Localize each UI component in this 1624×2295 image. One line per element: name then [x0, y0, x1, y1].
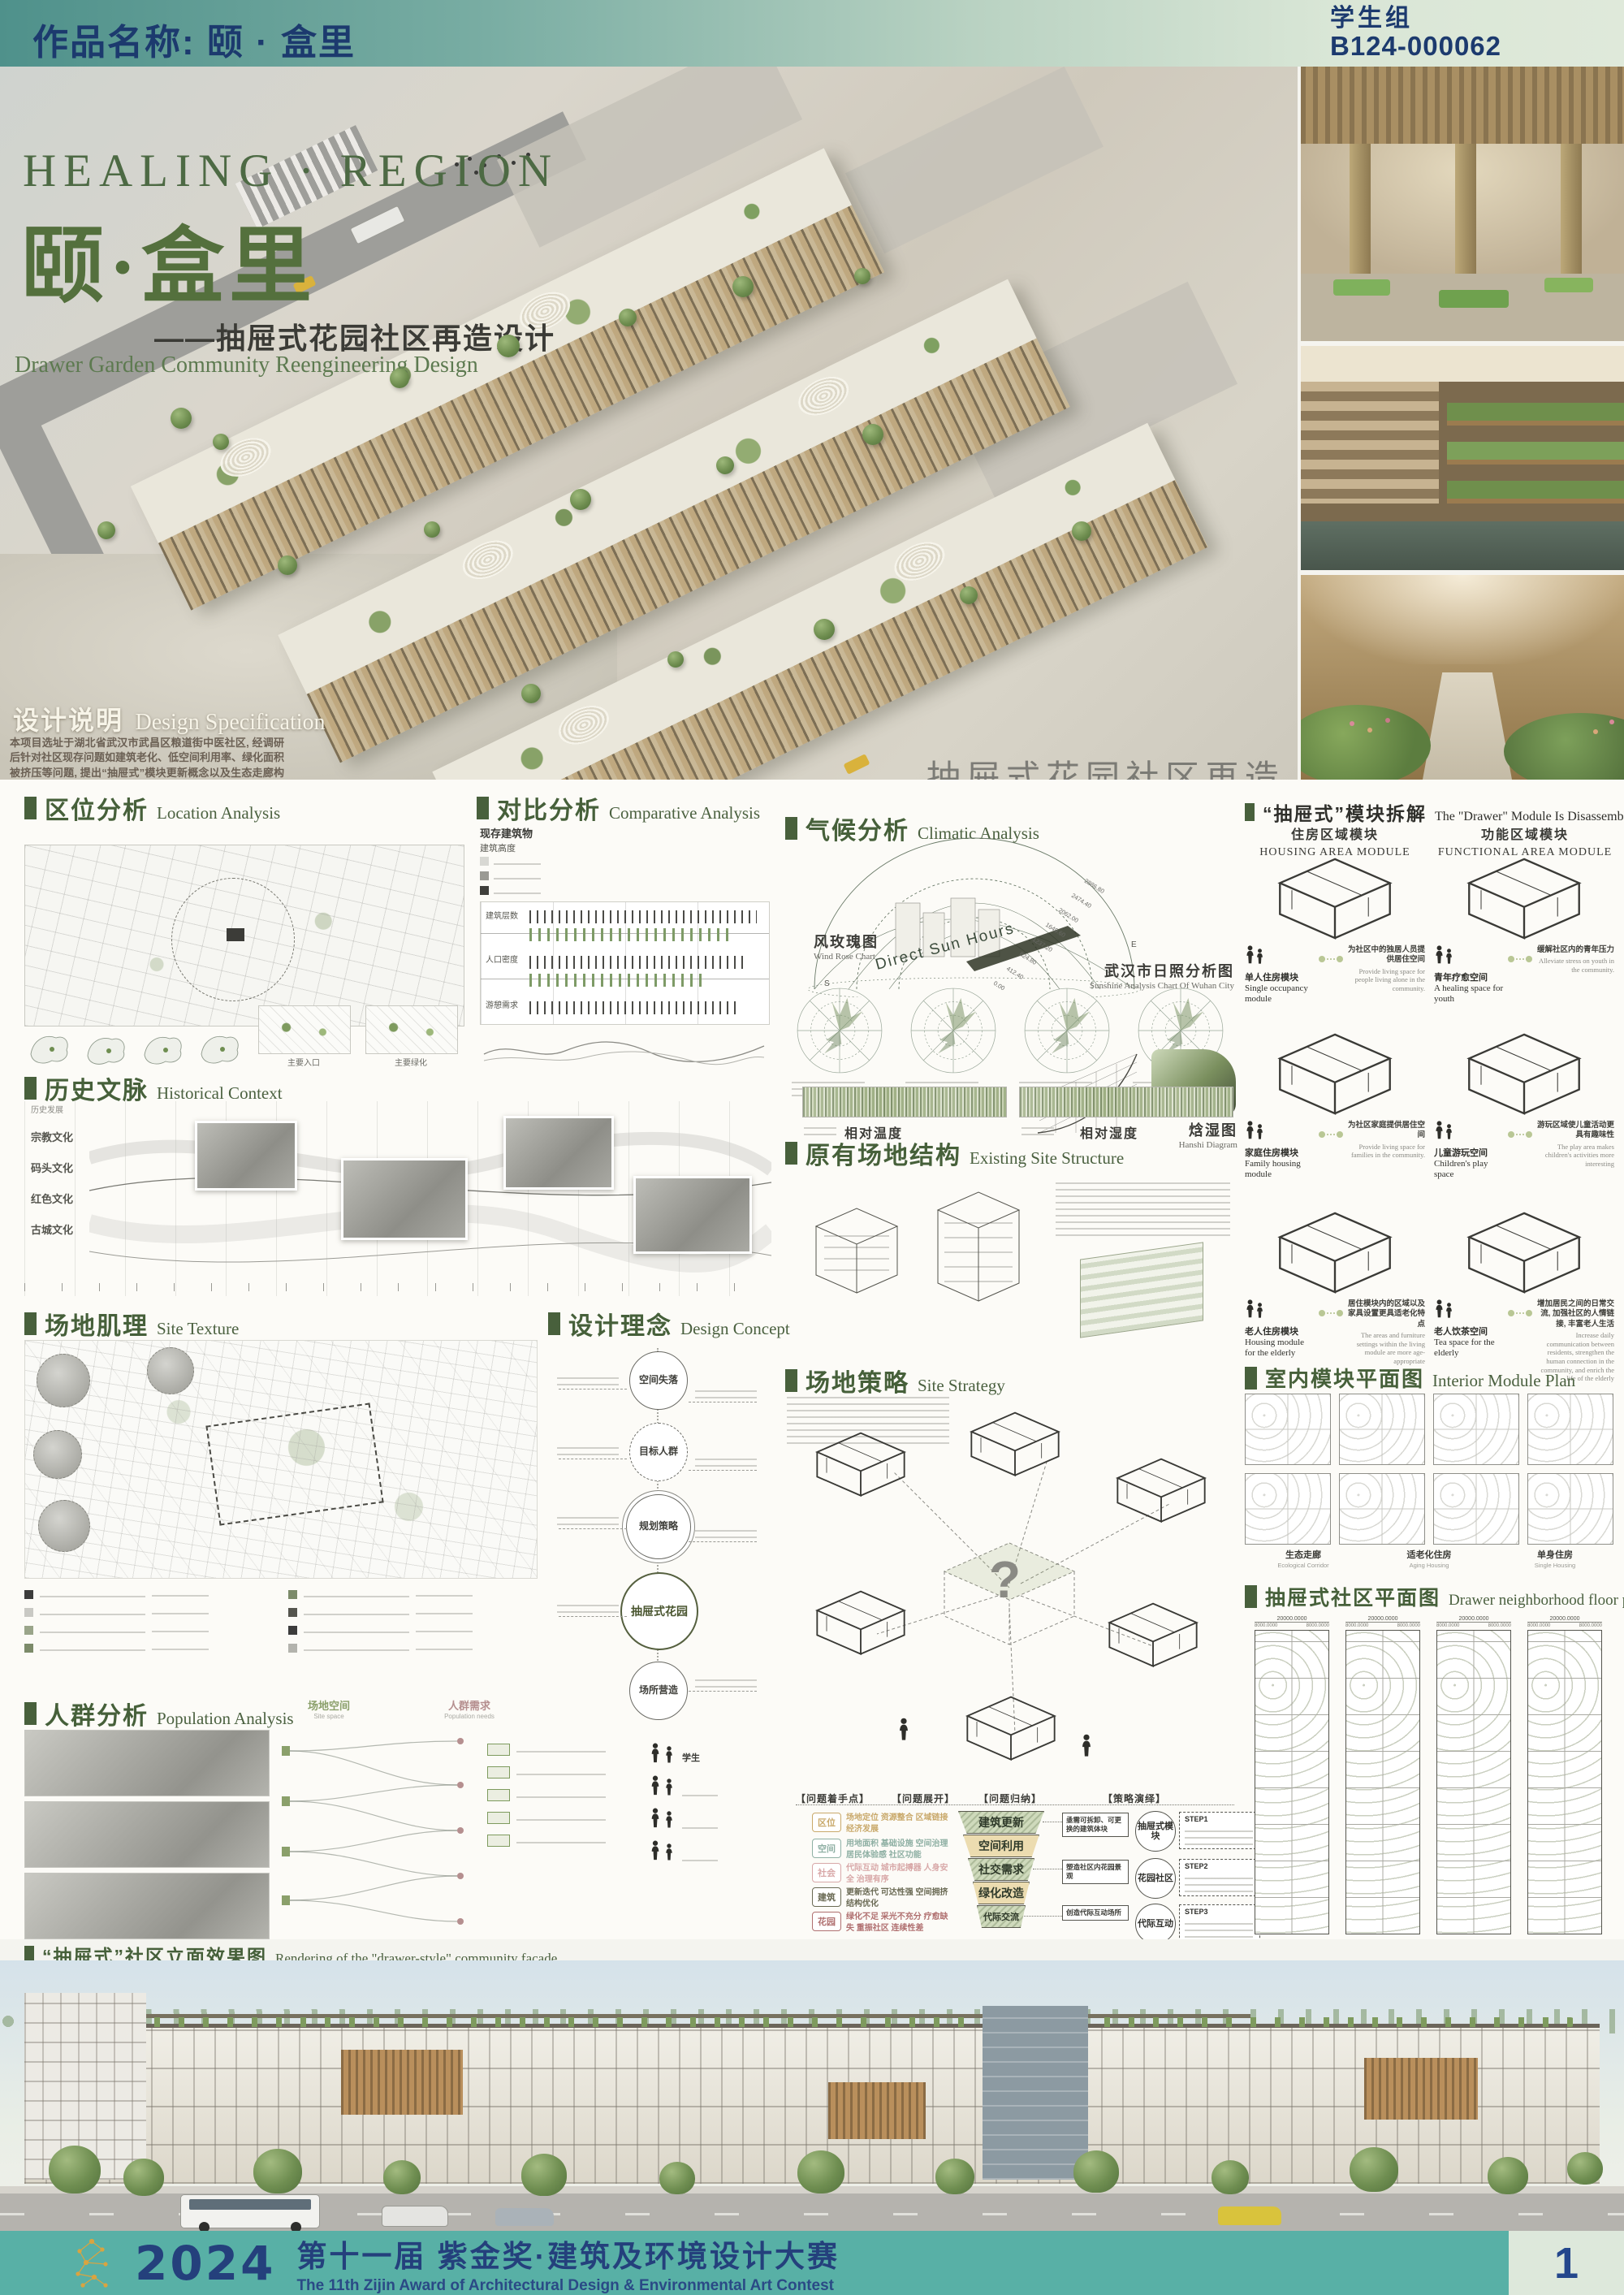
module-label: 单人住房模块Single occupancy module: [1245, 945, 1316, 1004]
legend-swatch: [480, 871, 489, 880]
module-desc-en: Provide living space for families in the…: [1345, 1143, 1425, 1160]
history-axis-label: 历史发展: [31, 1103, 63, 1115]
tree: [1567, 2152, 1603, 2185]
plan-dim-row: 8000.00008000.0000: [1345, 1623, 1420, 1628]
hero-subtitle-cn: ——抽屉式花园社区再造设计: [154, 315, 555, 357]
section-drawer-floor-plan: 抽屉式社区平面图 Drawer neighborhood floor plan: [1245, 1582, 1624, 1611]
person-icon: [650, 1840, 661, 1861]
culture-label: 古城文化: [31, 1221, 73, 1237]
sankey-header-1: 场地空间 Site space: [292, 1697, 365, 1720]
legend-text-placeholder: [416, 1610, 473, 1614]
floor-plan-strip: 20000.00008000.00008000.0000: [1255, 1616, 1329, 1934]
person-icon: [897, 1718, 910, 1742]
legend-text-placeholder: [40, 1645, 145, 1651]
tree: [732, 276, 754, 297]
dotted-connector: [1510, 1312, 1531, 1314]
history-photo: [195, 1121, 297, 1191]
section-title-cn: 场地肌理: [45, 1306, 149, 1342]
module-desc: 游玩区域使儿童活动更具有趣味性The play area makes child…: [1535, 1121, 1614, 1169]
design-spec-title-en: Design Specification: [135, 710, 325, 735]
module-cube-icon: [1463, 1030, 1585, 1116]
culture-label: 宗教文化: [31, 1129, 73, 1144]
section-marker: [24, 1702, 37, 1725]
flow-category: 花园: [812, 1912, 841, 1931]
person-icon: [1445, 949, 1453, 965]
row-label: 游憩需求: [486, 998, 518, 1010]
strategy-cube: [966, 1409, 1064, 1477]
need-list-item: [487, 1829, 633, 1852]
section-comparative-analysis: 对比分析 Comparative Analysis: [477, 790, 760, 826]
site-boundary: [205, 1402, 383, 1525]
module-desc: 居住模块内的区域以及家具设置更具适老化特点The areas and furni…: [1345, 1299, 1425, 1366]
person-group: [650, 1764, 771, 1796]
flow-arrow: [1024, 1916, 1062, 1917]
wind-rose-chart: [792, 983, 888, 1078]
strip-row: [529, 910, 757, 923]
caption-cn: 生态走廊: [1255, 1548, 1352, 1561]
windrose-label-en: Wind Rose Chart: [814, 952, 879, 962]
plan-dim-total: 20000.0000: [1436, 1616, 1511, 1623]
history-photo: [341, 1158, 468, 1240]
module-desc-cn: 增加居民之间的日常交流, 加强社区的人情链接, 丰富老人生活: [1535, 1299, 1614, 1329]
plan-body: [1527, 1630, 1602, 1934]
person-group: [650, 1796, 771, 1829]
person-icon: [1445, 1124, 1453, 1140]
temperature-heatstrip: [802, 1087, 1007, 1117]
planting-mound: [1301, 705, 1431, 780]
humidity-strip-label: 相对湿度: [1080, 1122, 1138, 1142]
need-text-placeholder: [516, 1837, 606, 1843]
hero-title-en: HEALING · REGION: [23, 145, 559, 197]
dotted-connector: [1510, 1134, 1531, 1135]
column: [1350, 144, 1371, 274]
legend-text-placeholder: [494, 859, 541, 865]
plan-dim-half: 8000.0000: [1255, 1623, 1277, 1628]
footer-titles: 第十一届 紫金奖·建筑及环境设计大赛 The 11th Zijin Award …: [296, 2232, 840, 2295]
section-title-cn: 人群分析: [45, 1696, 149, 1731]
population-person-groups: 学生: [650, 1731, 771, 1861]
interior-plan-tile: [1245, 1394, 1331, 1465]
legend-item: [480, 854, 541, 869]
step-text-placeholder: [1185, 1873, 1253, 1892]
tree: [171, 408, 192, 429]
water-reflection: [1301, 521, 1624, 570]
legend-swatch: [288, 1644, 297, 1653]
bus: [180, 2194, 320, 2228]
person-icon: [1434, 945, 1445, 965]
section-title-en: Interior Module Plan: [1432, 1371, 1575, 1391]
person-icon: [1434, 1299, 1445, 1319]
need-text-placeholder: [516, 1814, 606, 1821]
comparative-legend-items: [480, 854, 541, 898]
module-cube-icon: [1274, 1030, 1396, 1116]
question-mark: ?: [989, 1549, 1021, 1610]
section-title-cn: 设计理念: [568, 1306, 672, 1342]
concept-branch-line: [559, 1528, 627, 1529]
concept-branch-text-placeholder: [557, 1374, 619, 1385]
module-caption: 家庭住房模块Family housing module为社区家庭提供居住空间Pr…: [1245, 1121, 1425, 1179]
legend-text-placeholder: [304, 1609, 409, 1615]
population-photo: [24, 1873, 270, 1939]
module-cell: 青年疗愈空间A healing space for youth缓解社区内的青年压…: [1434, 854, 1614, 1004]
flow-keywords: 用地面积 基础设施 空间治理 居民体验感 社区功能: [846, 1839, 953, 1861]
top-header-bar: 作品名称: 颐 · 盒里 学生组 B124-000062: [0, 0, 1624, 67]
flow-circle-2: 花园社区: [1135, 1858, 1176, 1899]
plan-dim-row: 8000.00008000.0000: [1436, 1623, 1511, 1628]
legend-swatch: [24, 1626, 33, 1635]
person-icon: [664, 1779, 674, 1796]
interior-plan-tile: [1245, 1473, 1331, 1545]
tree: [49, 2146, 101, 2193]
tree: [814, 619, 835, 640]
legend-text-placeholder: [304, 1645, 409, 1651]
rooftop-planting: [32, 2017, 1575, 2027]
flow-category: 社会: [812, 1863, 841, 1882]
section-title-en: Site Texture: [157, 1319, 239, 1339]
interior-plan-tile: [1527, 1473, 1613, 1545]
flow-midbox-1: 亟需可拆卸、可更换的建筑体块: [1062, 1813, 1129, 1837]
section-title-en: Comparative Analysis: [609, 803, 760, 823]
tree: [97, 521, 115, 539]
tree: [1212, 2160, 1249, 2194]
section-marker: [1245, 1367, 1257, 1390]
interior-plan-tile: [1433, 1394, 1519, 1465]
context-building: [845, 67, 1104, 253]
module-cube-icon: [1274, 1208, 1396, 1294]
tree: [123, 2159, 164, 2196]
flow-header-3: 【问题归纳】: [978, 1791, 1042, 1805]
section-marker: [1245, 803, 1255, 821]
concept-branch-text-placeholder: [557, 1601, 619, 1613]
existing-structure-axons: [800, 1178, 1043, 1340]
sun-value: 2474.40: [1070, 892, 1093, 910]
concept-circle-3: 规划策略: [626, 1494, 691, 1559]
flow-stepbox-2: STEP2: [1179, 1859, 1260, 1896]
concept-circle-1: 空间失落: [629, 1351, 688, 1410]
module-label-en: Family housing module: [1245, 1159, 1316, 1179]
flow-stepbox-1: STEP1: [1179, 1812, 1260, 1849]
site-marker: [227, 928, 244, 941]
module-label: 青年疗愈空间A healing space for youth: [1434, 945, 1505, 1004]
hanshi-label-en: Hanshi Diagram: [1143, 1140, 1237, 1150]
concept-branch-line: [689, 1691, 757, 1692]
population-photo: [24, 1801, 270, 1868]
plan-dim-total: 20000.0000: [1527, 1616, 1602, 1623]
module-label-cn: 儿童游玩空间: [1434, 1146, 1505, 1159]
housing-header-cn: 住房区域模块: [1245, 823, 1425, 843]
person-icon: [664, 1843, 674, 1861]
person-icon: [1445, 1303, 1453, 1319]
person-group: [650, 1829, 771, 1861]
comparative-legend-sub: 建筑高度: [480, 841, 516, 854]
legend-swatch: [24, 1644, 33, 1653]
legend-swatch: [288, 1608, 297, 1617]
interior-caption-1: 生态走廊 Ecological Corridor: [1255, 1548, 1352, 1570]
module-label: 儿童游玩空间Children's play space: [1434, 1121, 1505, 1179]
comparative-legend-title: 现存建筑物: [480, 825, 533, 841]
tree: [1073, 2150, 1119, 2193]
concept-branch-line: [559, 1616, 627, 1617]
flow-stepbox-3: STEP3: [1179, 1904, 1260, 1942]
funnel-band-5: 代际交流: [977, 1905, 1026, 1928]
tree: [497, 335, 520, 357]
footer-title-en: The 11th Zijin Award of Architectural De…: [296, 2277, 840, 2295]
planter-row: [1447, 403, 1624, 426]
existing-structure-text-placeholder: [1056, 1179, 1230, 1236]
step-label: STEP1: [1185, 1815, 1255, 1823]
photo-courtyard-stairs: [1301, 346, 1624, 570]
column: [1455, 144, 1476, 274]
caption-en: Single Housing: [1535, 1562, 1575, 1569]
concept-branch-text-placeholder: [557, 1514, 619, 1525]
flow-keywords: 更新迭代 可达性强 空间拥挤 结构优化: [846, 1887, 953, 1909]
group-label: 学生组: [1330, 5, 1501, 32]
planter-row: [1447, 481, 1624, 504]
module-desc-en: The play area makes children's activitie…: [1535, 1143, 1614, 1169]
plan-body: [1345, 1630, 1420, 1934]
strip-row: [529, 1001, 736, 1014]
dotted-connector: [1320, 958, 1341, 960]
entrance-diagram: [258, 1005, 351, 1054]
section-marker: [1245, 1585, 1257, 1608]
watermark-cn: 抽屉式花园社区再造设计: [909, 750, 1285, 780]
tree: [862, 424, 883, 445]
plan-dim-half: 8000.0000: [1397, 1623, 1420, 1628]
section-marker: [24, 1077, 37, 1100]
section-title-en: Population Analysis: [157, 1709, 294, 1729]
wind-rose-chart: [905, 983, 1001, 1078]
funnel-band-4: 绿化改造: [973, 1882, 1030, 1904]
module-cell: 单人住房模块Single occupancy module为社区中的独居人员提供…: [1245, 854, 1425, 1004]
module-label-cn: 家庭住房模块: [1245, 1146, 1316, 1159]
module-desc-cn: 居住模块内的区域以及家具设置更具适老化特点: [1345, 1299, 1425, 1329]
tree: [570, 489, 591, 510]
funnel-band-3: 社交需求: [968, 1858, 1034, 1881]
sun-value: 2886.80: [1083, 877, 1106, 895]
interior-caption-2: 适老化住房 Aging Housing: [1372, 1548, 1486, 1570]
person-icon: [650, 1808, 661, 1829]
module-label-cn: 老人住房模块: [1245, 1325, 1316, 1338]
sankey-header-en: Site space: [292, 1713, 365, 1720]
module-label-en: Children's play space: [1434, 1159, 1505, 1179]
concept-branch-line: [689, 1470, 757, 1471]
section-marker: [785, 817, 797, 840]
concept-branch-line: [689, 1402, 757, 1402]
region-mini-maps: [24, 1028, 252, 1070]
section-site-texture: 场地肌理 Site Texture: [24, 1306, 239, 1342]
section-title-en: Existing Site Structure: [970, 1148, 1124, 1169]
hanshi-label: 焓湿图 Hanshi Diagram: [1143, 1119, 1237, 1150]
sun-value: 412.40: [1005, 965, 1025, 981]
plan-body: [1436, 1630, 1511, 1934]
poster: 作品名称: 颐 · 盒里 学生组 B124-000062: [0, 0, 1624, 2295]
legend-text-placeholder: [152, 1610, 209, 1614]
interior-plan-tile: [1339, 1394, 1425, 1465]
step-label: STEP3: [1185, 1908, 1255, 1916]
person-icon: [650, 1743, 661, 1764]
person-icon: [1080, 1734, 1093, 1758]
tree: [935, 2159, 974, 2194]
module-desc-cn: 缓解社区内的青年压力: [1535, 945, 1614, 955]
module-desc-cn: 游玩区域使儿童活动更具有趣味性: [1535, 1121, 1614, 1141]
design-spec-title: 设计说明 Design Specification: [13, 700, 326, 737]
green-furniture: [1544, 278, 1593, 292]
green-furniture: [1333, 279, 1390, 296]
concept-branch-text-placeholder: [557, 1444, 619, 1455]
person-icon: [1245, 945, 1255, 965]
wood-accent: [1364, 2058, 1478, 2120]
tree: [383, 2160, 421, 2194]
wood-accent: [828, 2082, 926, 2139]
concept-circle-4: 抽屉式花园: [620, 1572, 698, 1650]
concept-branch-text-placeholder: [695, 1455, 757, 1467]
person-icon: [1245, 1121, 1255, 1140]
legend-text-placeholder: [416, 1645, 473, 1650]
culture-label: 码头文化: [31, 1160, 73, 1175]
sankey-header-en: Population needs: [429, 1713, 510, 1720]
caption-cn: 适老化住房: [1372, 1548, 1486, 1561]
texture-legend-item: [288, 1585, 528, 1603]
flow-keywords: 代际互动 城市起搏器 人身安全 治理有序: [846, 1863, 953, 1885]
floor-plan-strips: 20000.00008000.00008000.000020000.000080…: [1255, 1616, 1612, 1934]
history-photo: [503, 1116, 614, 1190]
texture-inset-photo: [147, 1347, 194, 1394]
skylight: [1301, 346, 1624, 382]
sankey-header-2: 人群需求 Population needs: [429, 1697, 510, 1720]
funnel-band-2: 空间利用: [963, 1835, 1039, 1857]
legend-text-placeholder: [304, 1627, 409, 1633]
tree: [424, 521, 440, 538]
module-cube-icon: [1274, 854, 1396, 940]
plan-body: [1255, 1630, 1329, 1934]
plan-dim-half: 8000.0000: [1527, 1623, 1550, 1628]
daylight-glow: [1301, 575, 1624, 664]
module-desc-cn: 为社区家庭提供居住空间: [1345, 1121, 1425, 1141]
module-cube-icon: [1463, 854, 1585, 940]
texture-legend: [24, 1585, 528, 1657]
section-title-cn: 原有场地结构: [806, 1135, 961, 1171]
flow-header-1: 【问题着手点】: [796, 1791, 870, 1805]
functional-header-cn: 功能区域模块: [1434, 823, 1616, 843]
tree: [797, 2150, 844, 2193]
strategy-cube: [1112, 1455, 1210, 1524]
footer-bar: 2024 第十一届 紫金奖·建筑及环境设计大赛 The 11th Zijin A…: [0, 2231, 1509, 2295]
person-icon: [650, 1775, 661, 1796]
flow-midbox-2: 塑造社区内花园景观: [1062, 1860, 1129, 1884]
section-title-en: Location Analysis: [157, 803, 280, 823]
legend-text-placeholder: [494, 874, 541, 880]
flow-arrow: [1043, 1822, 1062, 1822]
ceiling-slats: [1301, 67, 1624, 144]
strategy-cube: [812, 1588, 909, 1656]
module-label-en: Single occupancy module: [1245, 983, 1316, 1004]
section-title-cn: 区位分析: [45, 790, 149, 826]
legend-text-placeholder: [416, 1592, 473, 1597]
tree: [1350, 2147, 1398, 2192]
person-label-placeholder: [682, 1790, 718, 1796]
tree: [253, 2149, 302, 2193]
person-icon: [1255, 1124, 1264, 1140]
flow-category: 建筑: [812, 1887, 841, 1907]
module-caption: 单人住房模块Single occupancy module为社区中的独居人员提供…: [1245, 945, 1425, 1004]
section-marker: [785, 1369, 797, 1392]
planter-row: [1447, 442, 1624, 465]
section-interior-module-plan: 室内模块平面图 Interior Module Plan: [1245, 1363, 1575, 1393]
concept-branch-line: [559, 1459, 627, 1459]
module-label: 老人饮茶空间Tea space for the elderly: [1434, 1299, 1505, 1358]
module-label-en: A healing space for youth: [1434, 983, 1505, 1004]
module-desc-cn: 为社区中的独居人员提供居住空间: [1345, 945, 1425, 966]
wind-rose-label: 风玫瑰图 Wind Rose Chart: [814, 931, 879, 962]
section-population-analysis: 人群分析 Population Analysis: [24, 1696, 294, 1731]
flow-keywords: 绿化不足 采光不充分 疗愈缺失 重振社区 连续性差: [846, 1912, 953, 1934]
module-label-en: Housing module for the elderly: [1245, 1338, 1316, 1358]
plan-dim-row: 8000.00008000.0000: [1255, 1623, 1329, 1628]
interior-plan-tile: [1433, 1473, 1519, 1545]
plan-dim-half: 8000.0000: [1307, 1623, 1329, 1628]
tree: [278, 555, 297, 575]
module-label-cn: 青年疗愈空间: [1434, 970, 1505, 983]
module-caption: 儿童游玩空间Children's play space游玩区域使儿童活动更具有趣…: [1434, 1121, 1614, 1179]
step-label: STEP2: [1185, 1862, 1255, 1870]
person-group-label: 学生: [682, 1751, 700, 1764]
section-marker: [548, 1312, 560, 1335]
need-list-item: [487, 1783, 633, 1806]
module-desc-en: Provide living space for people living a…: [1345, 967, 1425, 993]
section-title-en: Drawer neighborhood floor plan: [1449, 1592, 1624, 1610]
texture-legend-item: [24, 1585, 264, 1603]
greenery-caption: 主要绿化: [365, 1056, 456, 1068]
person-icon: [1255, 949, 1264, 965]
caption-en: Aging Housing: [1410, 1562, 1449, 1569]
planting-mound: [1504, 713, 1624, 780]
entrance-caption: 主要入口: [258, 1056, 349, 1068]
population-need-list: [487, 1738, 633, 1852]
hero-title-cn: 颐·盒里: [21, 200, 317, 319]
humidity-heatstrip: [1019, 1087, 1233, 1117]
flow-circle-1: 抽屉式模块: [1135, 1811, 1176, 1852]
legend-swatch: [24, 1608, 33, 1617]
interior-plan-grid: [1245, 1394, 1615, 1545]
person-icon: [664, 1811, 674, 1829]
tree: [213, 434, 229, 450]
person-label-placeholder: [682, 1855, 718, 1861]
plan-dim-half: 8000.0000: [1488, 1623, 1511, 1628]
module-desc: 为社区中的独居人员提供居住空间Provide living space for …: [1345, 945, 1425, 993]
flow-keywords: 场地定位 资源整合 区域链接 经济发展: [846, 1813, 953, 1835]
entry-id: B124-000062: [1330, 32, 1501, 61]
timeline-ticks: [24, 1283, 771, 1291]
section-design-concept: 设计理念 Design Concept: [548, 1306, 790, 1342]
hero-aerial-rendering: HEALING · REGION 颐·盒里 ——抽屉式花园社区再造设计 Draw…: [0, 67, 1298, 780]
design-spec-paragraph-1: 本项目选址于湖北省武汉市武昌区粮道街中医社区, 经调研后针对社区现存问题如建筑老…: [10, 736, 284, 780]
strip-legend-placeholder: [804, 1122, 836, 1135]
entry-group: 学生组 B124-000062: [1330, 5, 1501, 61]
legend-text-placeholder: [152, 1627, 209, 1632]
module-desc: 缓解社区内的青年压力Alleviate stress on youth in t…: [1535, 945, 1614, 975]
module-label-cn: 老人饮茶空间: [1434, 1325, 1505, 1338]
plan-dim-total: 20000.0000: [1345, 1616, 1420, 1623]
need-list-item: [487, 1738, 633, 1761]
row-label: 人口密度: [486, 953, 518, 965]
texture-map: [24, 1340, 538, 1579]
plan-dim-half: 8000.0000: [1579, 1623, 1602, 1628]
windrose-label-cn: 风玫瑰图: [814, 931, 879, 952]
texture-legend-item: [24, 1639, 264, 1657]
stairs: [1301, 382, 1439, 504]
need-text-placeholder: [516, 1769, 606, 1775]
strategy-cube: [812, 1429, 909, 1498]
